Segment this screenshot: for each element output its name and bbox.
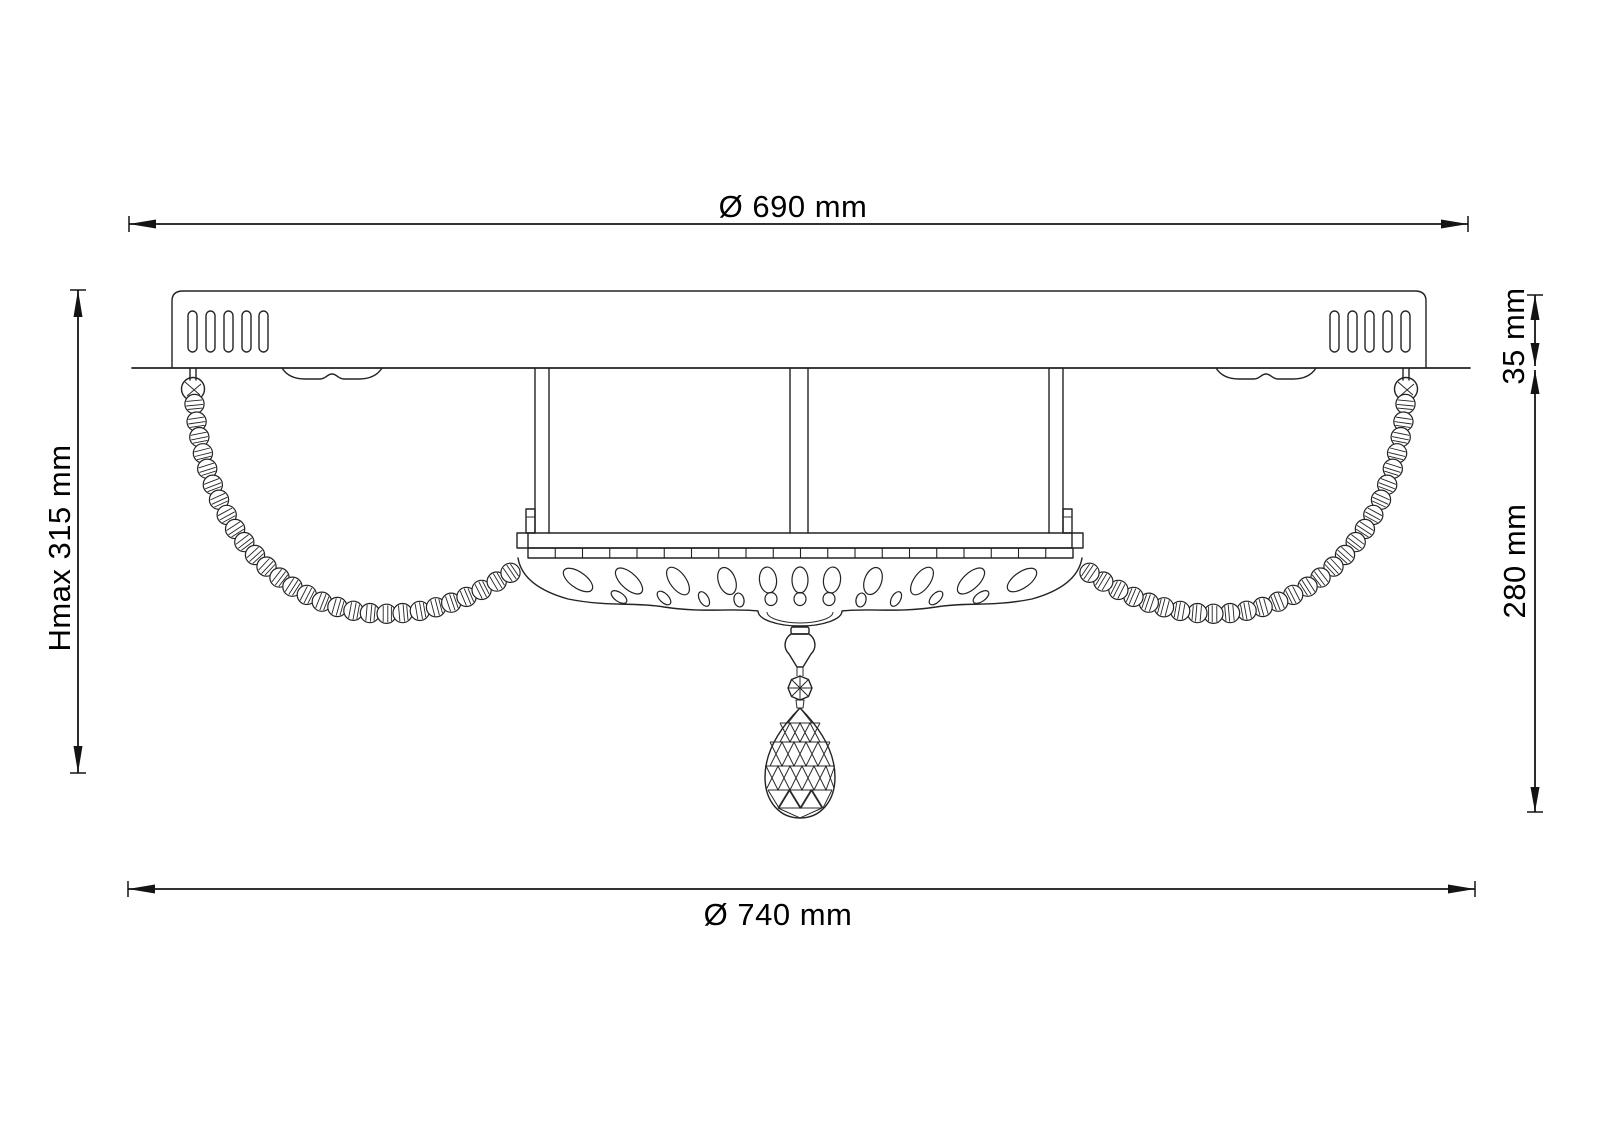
max-height-label: Hmax 315 mm — [42, 444, 78, 651]
vent-slots — [188, 311, 1410, 352]
right-bead-swag — [1080, 394, 1415, 623]
body-drop-label: 280 mm — [1497, 504, 1533, 619]
post-feet — [526, 509, 1072, 533]
finial — [785, 627, 815, 708]
bottom-diameter-label: Ø 740 mm — [704, 897, 853, 933]
swag-hangers — [182, 368, 1418, 401]
top-diameter-label: Ø 690 mm — [719, 189, 868, 225]
crystal-teardrop — [765, 708, 835, 818]
technical-drawing-canvas: Ø 690 mm Ø 740 mm Hmax 315 mm 35 mm 280 … — [0, 0, 1600, 1131]
bottom-diameter-dimension — [128, 881, 1475, 897]
bowl — [518, 558, 1082, 626]
canopy — [172, 291, 1426, 368]
mounting-clips — [282, 368, 1316, 379]
bowl-perforations — [559, 563, 1040, 608]
ceiling-fixture — [132, 291, 1470, 818]
chandelier-line-drawing — [0, 0, 1600, 1131]
rim-ring — [517, 533, 1083, 558]
octagon-bead — [788, 676, 812, 700]
support-posts — [526, 368, 1072, 533]
dimension-lines — [70, 216, 1543, 897]
rim-segments — [555, 548, 1046, 558]
canopy-height-label: 35 mm — [1496, 287, 1532, 384]
left-bead-swag — [185, 394, 520, 623]
